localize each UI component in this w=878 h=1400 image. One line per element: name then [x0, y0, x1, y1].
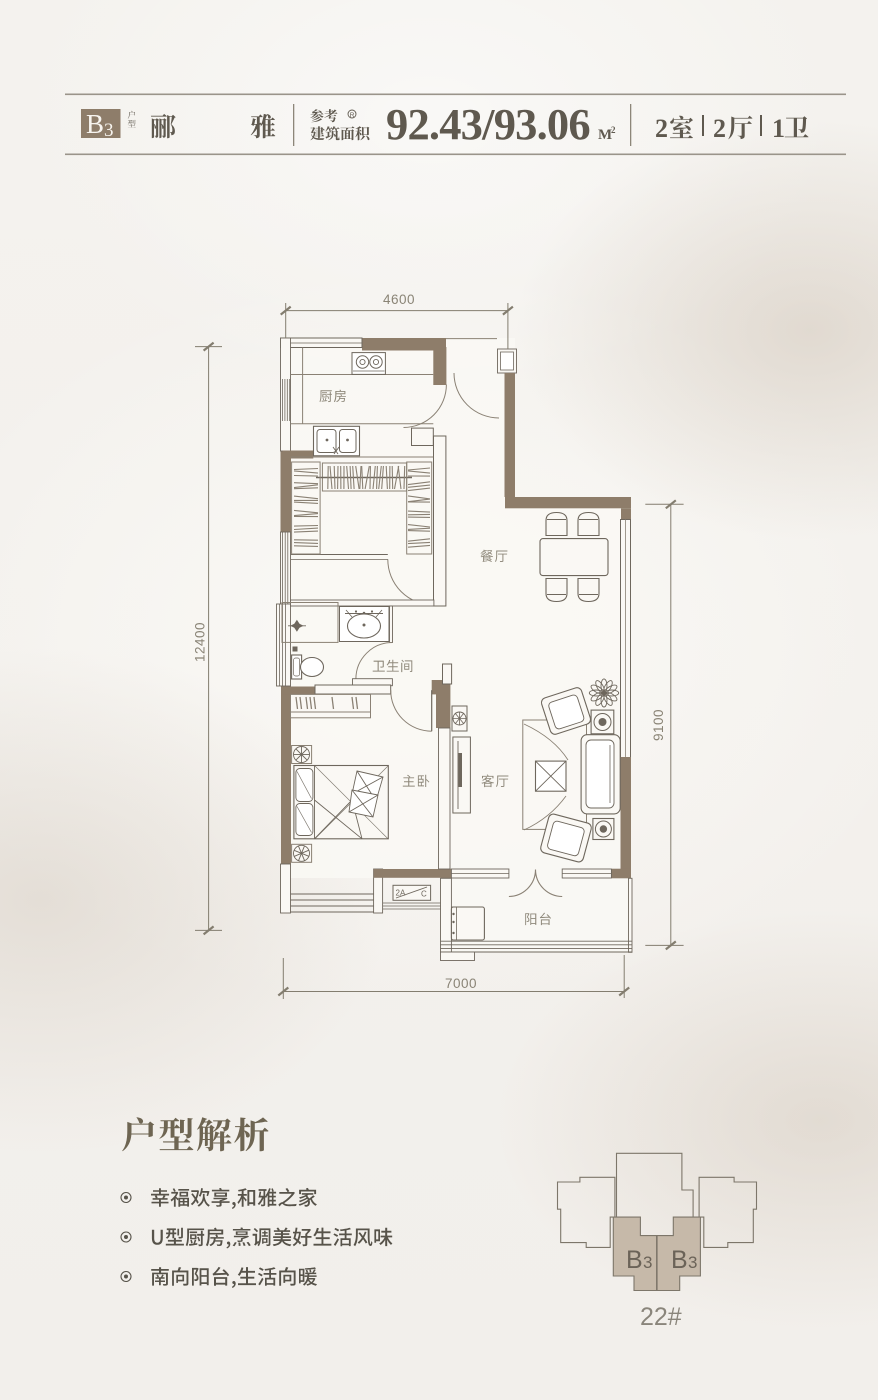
svg-text:2: 2: [655, 114, 668, 143]
svg-text:3: 3: [643, 1253, 652, 1272]
svg-text:2: 2: [713, 114, 726, 143]
svg-text:4600: 4600: [383, 292, 415, 307]
svg-text:12400: 12400: [193, 622, 208, 662]
svg-text:9100: 9100: [651, 709, 666, 741]
svg-text:B: B: [86, 109, 104, 139]
svg-text:B: B: [671, 1246, 688, 1274]
svg-text:1: 1: [772, 114, 785, 143]
svg-text:2A: 2A: [396, 889, 406, 898]
svg-text:B: B: [626, 1246, 643, 1274]
svg-text:2: 2: [611, 125, 616, 135]
svg-text:3: 3: [688, 1253, 697, 1272]
svg-text:7000: 7000: [445, 976, 477, 991]
svg-text:C: C: [421, 890, 427, 899]
svg-text:R: R: [350, 112, 355, 119]
svg-text:22#: 22#: [640, 1303, 682, 1331]
svg-text:3: 3: [104, 120, 114, 141]
svg-text:92.43/93.06: 92.43/93.06: [386, 99, 590, 149]
